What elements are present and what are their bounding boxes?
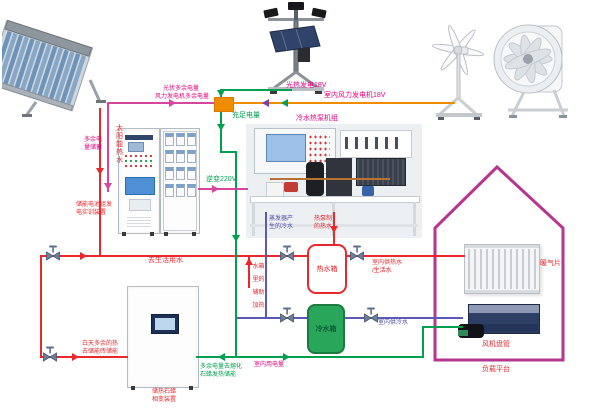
arrow-icon (281, 99, 288, 107)
wire-surplus-to-storage (107, 102, 214, 104)
arrow-icon (232, 235, 240, 242)
label-daytime-surplus-heat: 白天多余的热去储能砖储能 (82, 341, 118, 356)
label-to-domestic-water: 去生活用水 (148, 257, 183, 266)
label-radiator: 暖气片 (540, 260, 561, 269)
label-heat-pump-hot-water: 热泵制的热水 (314, 216, 332, 231)
valve-icon (42, 346, 58, 362)
wire-junction-down (220, 110, 222, 152)
cold-water-tank: 冷水箱 (307, 304, 345, 354)
arrow-icon (212, 185, 219, 193)
fan-coil-illustration (458, 300, 542, 342)
valve-icon (45, 245, 61, 261)
label-fan-coil: 风机盘管 (482, 341, 510, 350)
label-surplus-to-melt: 多余电量去熔化石蜡发热储能 (200, 364, 242, 379)
arrow-icon (218, 353, 225, 361)
arrow-icon (217, 90, 225, 97)
paraffin-storage-cabinet (127, 286, 199, 388)
junction-box (214, 97, 234, 112)
label-solar-hot-water: 太阳能热水 (114, 124, 123, 172)
hot-water-tank-label: 热水箱 (317, 264, 338, 274)
wire-inverter-220v (198, 188, 248, 190)
pipe-solar-hot-water (99, 108, 101, 255)
pipe-cold-tank-to-fancoil (341, 317, 463, 319)
pipe-evaporator-cold-water (265, 212, 267, 317)
label-surplus-storage: 多余电量储蓄 (84, 137, 102, 152)
wire-up-to-fancoil (422, 327, 424, 358)
arrow-icon (262, 99, 269, 107)
label-indoor-hot-water: 室内供热水/生活水 (372, 260, 402, 275)
arrow-icon (104, 183, 112, 190)
label-paraffin-device: 储热石蜡相变装置 (146, 389, 182, 404)
label-heat-pump-unit: 冷水热泵机组 (296, 115, 338, 124)
label-indoor-cold-water: 室内供冷水 (378, 320, 408, 328)
label-load-platform: 负载平台 (482, 366, 510, 375)
battery-rack-cabinet (160, 128, 200, 234)
valve-icon (279, 245, 295, 261)
wire-pv-to-bus (221, 89, 292, 91)
wire-paraffin-bus (196, 356, 424, 358)
arrow-icon (283, 353, 290, 361)
wire-into-fancoil (422, 326, 463, 328)
label-inverter-220v: 逆变220V (206, 176, 236, 185)
pipe-cold-water-left (237, 317, 307, 319)
arrow-icon (217, 124, 225, 131)
hot-water-tank: 热水箱 (307, 244, 347, 294)
pipe-hot-water-down-left (40, 255, 42, 358)
label-sufficient-power: 充足电量 (232, 112, 260, 121)
label-evaporator-cold-water: 蒸发器产生的冷水 (269, 216, 293, 231)
label-tank-aux-heating: 水箱里的 辅助加热 (252, 261, 265, 313)
label-battery-training-device: 储能电池组发电实训装置 (76, 202, 112, 217)
label-indoor-power-use: 室内用电量 (254, 362, 284, 370)
label-indoor-wind-generation: 室内风力发电机18V (324, 92, 385, 101)
diagram-canvas: 热水箱 冷水箱 太阳能热水 光热发电18V 室内风力发电机18V 光伏多余电量 … (0, 0, 600, 419)
arrow-icon (96, 168, 104, 175)
cold-water-tank-label: 冷水箱 (316, 324, 337, 334)
valve-icon (279, 307, 295, 323)
label-pv-generation: 光热发电18V (286, 82, 326, 91)
arrow-icon (80, 252, 87, 260)
valve-icon (349, 245, 365, 261)
valve-icon (363, 307, 379, 323)
label-pv-surplus: 光伏多余电量 (163, 86, 199, 94)
radiator-illustration (464, 244, 540, 294)
battery-control-cabinet (118, 128, 160, 234)
arrow-icon (72, 353, 79, 361)
solar-collector-illustration (2, 14, 120, 118)
wire-surplus-down (107, 102, 109, 192)
label-wind-surplus: 风力发电机多余电量 (155, 94, 209, 102)
pv-tracker-illustration (256, 2, 336, 94)
